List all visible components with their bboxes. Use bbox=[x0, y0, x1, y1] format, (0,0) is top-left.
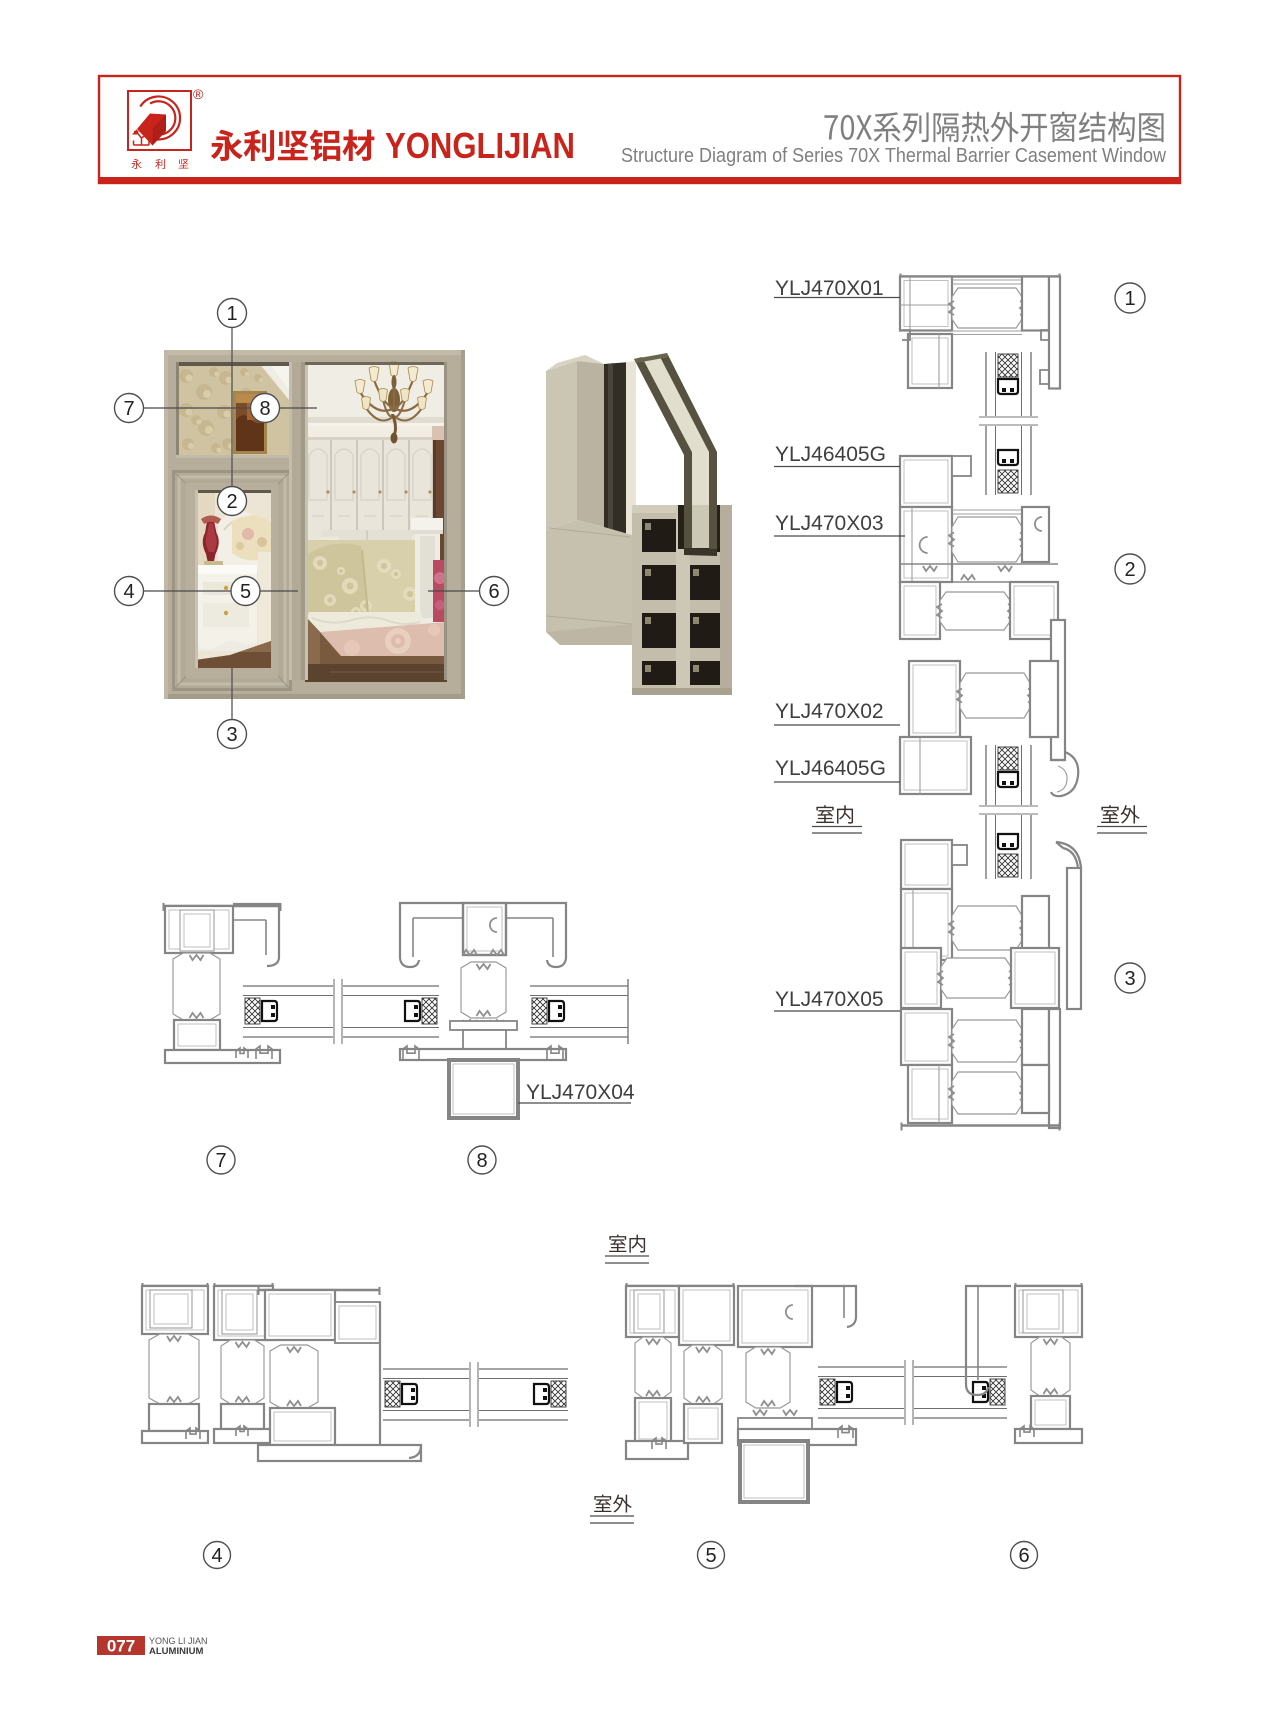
svg-text:YLJ46405G: YLJ46405G bbox=[775, 443, 886, 466]
svg-text:YLJ470X05: YLJ470X05 bbox=[775, 988, 884, 1011]
svg-text:1: 1 bbox=[1124, 288, 1135, 310]
svg-text:7: 7 bbox=[123, 398, 134, 420]
svg-text:1: 1 bbox=[226, 303, 237, 325]
svg-text:YONG LI JIAN: YONG LI JIAN bbox=[149, 1636, 208, 1646]
svg-text:YLJ470X04: YLJ470X04 bbox=[526, 1081, 635, 1104]
svg-text:Structure Diagram of Series 70: Structure Diagram of Series 70X Thermal … bbox=[621, 144, 1166, 167]
svg-text:3: 3 bbox=[226, 724, 237, 746]
svg-text:2: 2 bbox=[1124, 559, 1135, 581]
svg-text:8: 8 bbox=[259, 398, 270, 420]
svg-text:2: 2 bbox=[226, 491, 237, 513]
svg-text:6: 6 bbox=[488, 581, 499, 603]
svg-text:YONGLIJIAN: YONGLIJIAN bbox=[385, 125, 575, 166]
svg-text:YLJ46405G: YLJ46405G bbox=[775, 757, 886, 780]
svg-text:4: 4 bbox=[123, 581, 134, 603]
svg-text:7: 7 bbox=[215, 1150, 226, 1172]
svg-text:077: 077 bbox=[107, 1637, 135, 1656]
svg-text:5: 5 bbox=[240, 581, 251, 603]
svg-text:8: 8 bbox=[476, 1150, 487, 1172]
svg-text:YLJ470X01: YLJ470X01 bbox=[775, 277, 884, 300]
svg-text:YLJ470X03: YLJ470X03 bbox=[775, 512, 884, 535]
svg-text:YLJ470X02: YLJ470X02 bbox=[775, 700, 884, 723]
svg-text:3: 3 bbox=[1124, 968, 1135, 990]
svg-text:6: 6 bbox=[1018, 1545, 1029, 1567]
svg-text:5: 5 bbox=[705, 1545, 716, 1567]
svg-text:ALUMINIUM: ALUMINIUM bbox=[149, 1646, 203, 1657]
svg-text:4: 4 bbox=[211, 1545, 222, 1567]
svg-text:®: ® bbox=[193, 86, 204, 102]
